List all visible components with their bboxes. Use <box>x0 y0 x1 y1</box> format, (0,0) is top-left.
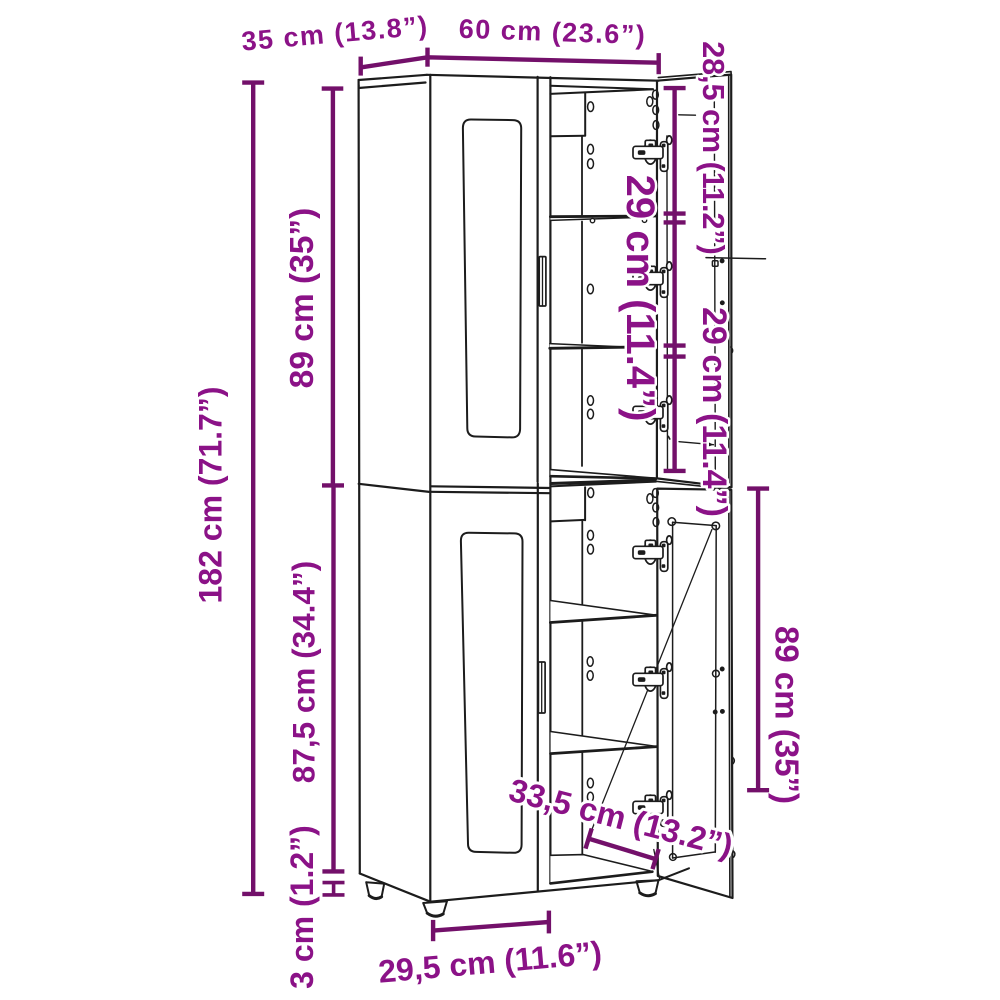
svg-text:28,5 cm (11.2”): 28,5 cm (11.2”) <box>696 41 730 255</box>
svg-text:87,5 cm (34.4”): 87,5 cm (34.4”) <box>286 561 322 783</box>
svg-text:3 cm (1.2”): 3 cm (1.2”) <box>284 825 320 989</box>
svg-text:182 cm (71.7”): 182 cm (71.7”) <box>193 386 229 603</box>
svg-text:89 cm (35”): 89 cm (35”) <box>284 208 321 389</box>
svg-text:89 cm (35”): 89 cm (35”) <box>769 626 806 804</box>
svg-text:29 cm (11.4”): 29 cm (11.4”) <box>695 307 733 517</box>
svg-text:29 cm (11.4”): 29 cm (11.4”) <box>618 175 662 422</box>
